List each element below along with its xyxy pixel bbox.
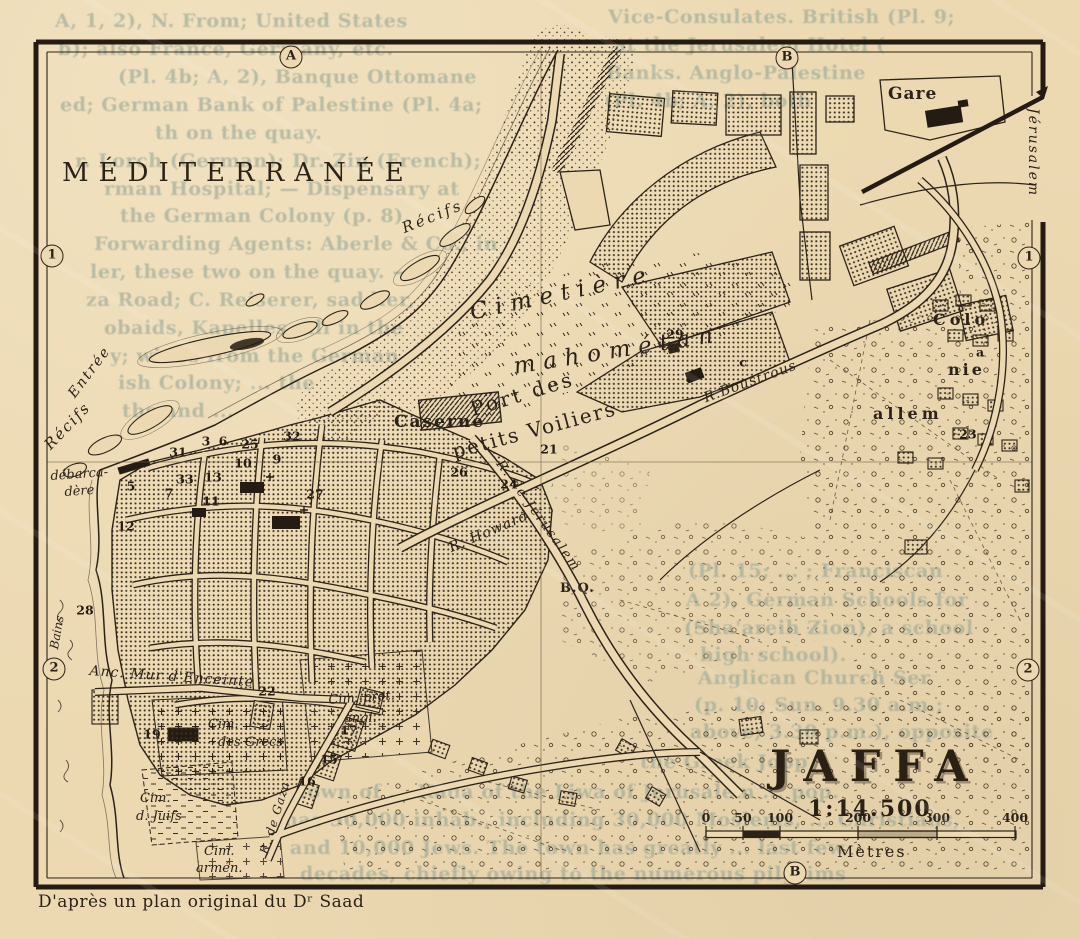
map-lettering-layer: MÉDITERRANÉE JAFFA 1:14.500 Mètres D'apr… <box>0 0 1080 939</box>
rue-gaza-label: R. de Gaza <box>258 780 292 856</box>
attribution-line: D'après un plan original du Dʳ Saad <box>38 892 364 912</box>
colonie-label-3: allem <box>873 406 943 422</box>
map-number-a: a <box>976 345 984 360</box>
cim-prot-label-1: Cim. prot. <box>328 689 395 707</box>
scale-tick-50: 50 <box>734 810 751 825</box>
map-number-10: 10 <box>234 456 251 471</box>
map-number-6: 6 <box>219 434 228 449</box>
jerusalem-direction-label: Jérusalem <box>1026 108 1040 197</box>
cim-juifs-label-2: d. Juifs <box>136 810 182 823</box>
edge-marker-2-5: 2 <box>1017 659 1040 682</box>
map-scale-ratio: 1:14.500 <box>808 796 932 822</box>
map-number-26: 26 <box>450 465 467 480</box>
map-page: A, 1, 2), N. From; United StatesVice-Con… <box>0 0 1080 939</box>
map-number-33: 33 <box>176 472 193 487</box>
rue-howard-label: R. Howard <box>447 509 531 555</box>
edge-marker-2-4: 2 <box>43 658 66 681</box>
edge-marker-A-0: A <box>280 46 303 69</box>
map-number-19: 19 <box>143 727 160 742</box>
map-number-27: 27 <box>306 487 323 502</box>
colonie-label-1: Colo <box>933 312 989 328</box>
cim-armen-label-1: Cim. <box>204 845 235 858</box>
colonie-label-2: nie <box>948 362 985 378</box>
map-number-32: 32 <box>283 429 300 444</box>
map-number-5: 5 <box>127 479 136 494</box>
map-title: JAFFA <box>770 742 981 792</box>
edge-marker-1-3: 1 <box>1018 247 1041 270</box>
scale-tick-400: 400 <box>1002 810 1028 825</box>
map-number-15: 15 <box>320 752 337 767</box>
map-number-11: 11 <box>202 494 219 509</box>
scale-tick-100: 100 <box>767 810 793 825</box>
edge-marker-B-1: B <box>776 47 799 70</box>
cimetiere-label-1: Cimetière <box>468 263 656 324</box>
map-number-24: 24 <box>500 477 517 492</box>
map-number-31: 31 <box>169 445 186 460</box>
bains-label: Bains <box>48 615 66 650</box>
map-number-28: 28 <box>76 603 93 618</box>
map-number-13: 13 <box>204 470 221 485</box>
map-number-8: 8 <box>686 371 695 386</box>
recifs-north-label: Récifs <box>400 198 466 236</box>
debarcadere-label-2: dère <box>64 484 95 499</box>
sea-label: MÉDITERRANÉE <box>62 160 414 186</box>
scale-tick-0: 0 <box>702 810 711 825</box>
map-number-23: 23 <box>959 427 976 442</box>
gare-label: Gare <box>888 86 937 103</box>
caserne-label: Caserne <box>394 414 485 431</box>
edge-marker-1-2: 1 <box>41 245 64 268</box>
map-number-21: 21 <box>540 442 557 457</box>
map-number-7: 7 <box>165 486 174 501</box>
map-number-29: 29 <box>666 327 683 342</box>
map-number-22: 22 <box>258 684 275 699</box>
map-number-3: 3 <box>202 434 211 449</box>
entree-label: Entrée <box>66 344 113 400</box>
cim-juifs-label-1: Cim. <box>140 792 171 805</box>
recifs-west-label: Récifs <box>42 400 94 453</box>
map-number-17: 17 <box>340 723 357 738</box>
map-number-16: 16 <box>298 774 315 789</box>
scale-unit-label: Mètres <box>837 842 907 861</box>
map-number-9: 9 <box>273 452 282 467</box>
cim-grecs-label-1: Cim. <box>208 718 239 731</box>
bq-label: B.Q. <box>560 582 595 595</box>
map-number-12: 12 <box>117 519 134 534</box>
edge-marker-B-6: B <box>784 862 807 885</box>
map-number-25: 25 <box>241 437 258 452</box>
map-number-c: c <box>739 355 747 370</box>
rue-boustrous-label: R.Boustrous <box>702 359 799 406</box>
debarcadere-label-1: débarca- <box>50 466 109 483</box>
cim-armen-label-2: armén. <box>196 862 243 875</box>
anc-mur-label: Anc. Mur d'Enceinte <box>89 664 255 689</box>
cim-grecs-label-2: des Grecs <box>218 736 283 749</box>
